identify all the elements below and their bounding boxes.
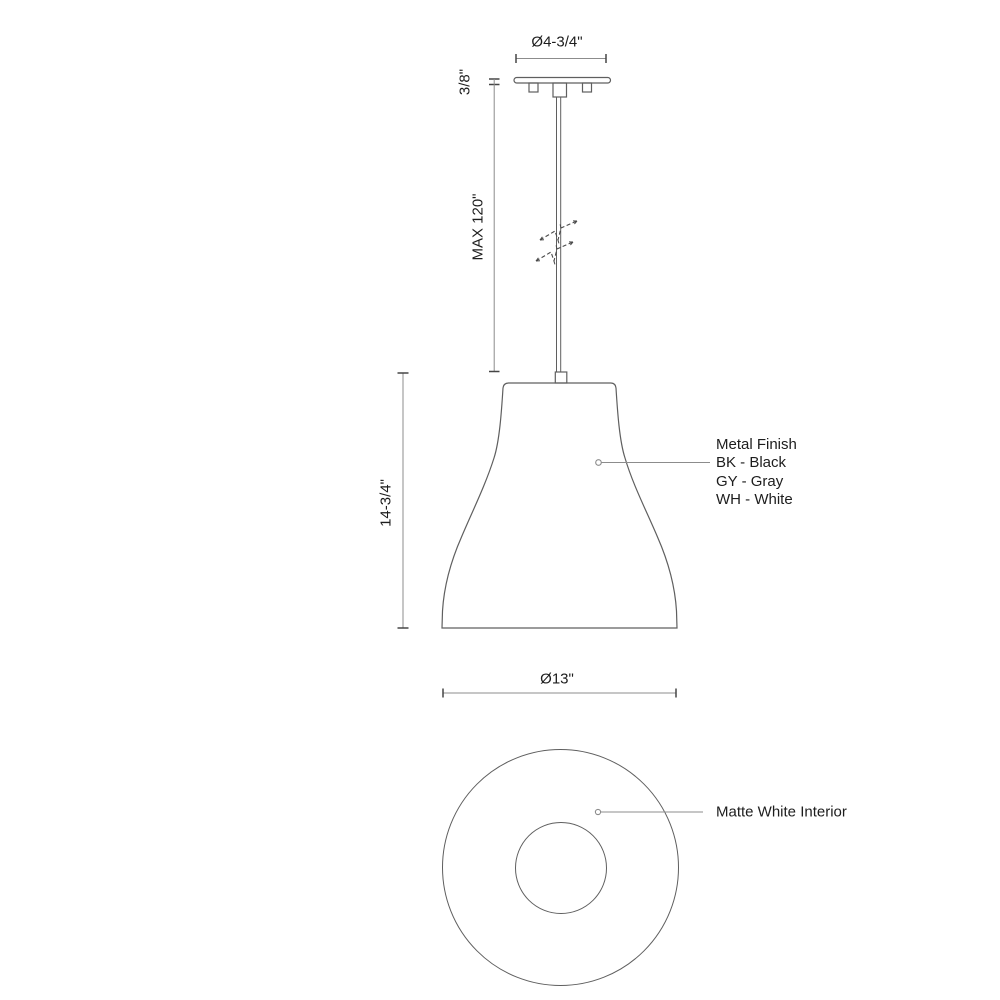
- shade-outline: [442, 383, 677, 628]
- shade-height-label: 14-3/4": [378, 479, 395, 527]
- break-arrowheads-upper: [540, 221, 577, 244]
- rod-length-dimension: [489, 79, 500, 372]
- bottom-view-outer-circle: [443, 750, 679, 986]
- rod-max-length-label: MAX 120": [470, 193, 487, 260]
- break-zigzag-upper: [540, 221, 577, 240]
- interior-leader: [595, 809, 703, 814]
- callout-dot: [596, 460, 602, 466]
- canopy-screw-right: [583, 83, 592, 92]
- canopy-diameter-dimension: [516, 54, 606, 63]
- metal-finish-option-wh: WH - White: [716, 491, 797, 509]
- metal-finish-title: Metal Finish: [716, 436, 797, 454]
- canopy-stem-connector: [553, 83, 567, 97]
- interior-annotation: Matte White Interior: [716, 804, 847, 821]
- metal-finish-option-bk: BK - Black: [716, 454, 797, 472]
- shade-socket: [555, 372, 567, 383]
- callout-dot: [595, 809, 600, 814]
- shade: [442, 372, 677, 628]
- canopy: [514, 78, 611, 98]
- metal-finish-annotation: Metal Finish BK - Black GY - Gray WH - W…: [716, 436, 797, 510]
- canopy-plate: [514, 78, 611, 84]
- line-drawing: [0, 0, 1000, 1000]
- hang-rod: [557, 97, 561, 372]
- bottom-view: [443, 750, 679, 986]
- shade-height-dimension: [398, 373, 409, 628]
- shade-diameter-label: Ø13": [540, 671, 574, 688]
- pendant-light-spec-drawing: Ø4-3/4" 3/8" MAX 120" 14-3/4" Ø13" Metal…: [0, 0, 1000, 1000]
- break-arrowheads-lower: [536, 242, 573, 265]
- canopy-screw-left: [529, 83, 538, 92]
- canopy-diameter-label: Ø4-3/4": [531, 34, 582, 51]
- bottom-view-inner-circle: [516, 823, 607, 914]
- canopy-height-label: 3/8": [457, 69, 474, 95]
- break-zigzag-lower: [536, 242, 573, 261]
- metal-finish-leader: [596, 460, 710, 466]
- shade-diameter-dimension: [443, 689, 676, 698]
- metal-finish-option-gy: GY - Gray: [716, 473, 797, 491]
